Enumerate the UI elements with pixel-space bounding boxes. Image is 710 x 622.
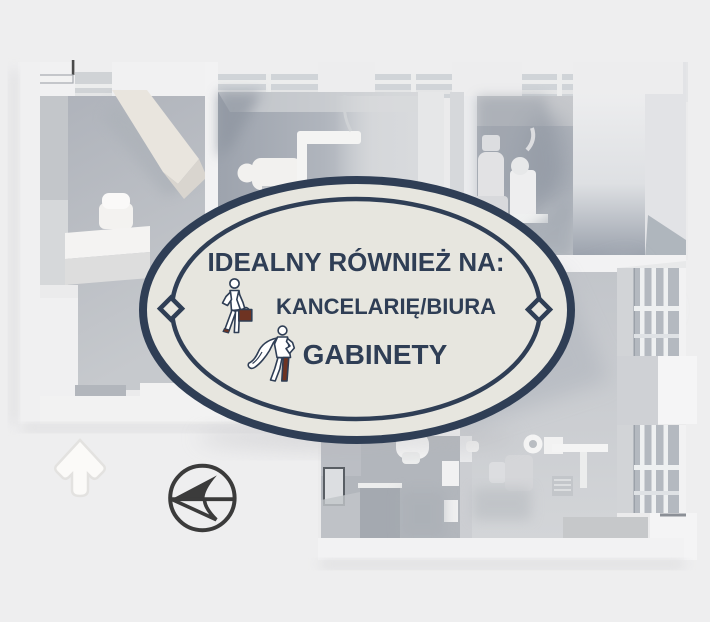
- svg-text:IDEALNY RÓWNIEŻ NA:: IDEALNY RÓWNIEŻ NA:: [207, 247, 504, 277]
- svg-text:GABINETY: GABINETY: [303, 339, 448, 370]
- svg-text:KANCELARIĘ/BIURA: KANCELARIĘ/BIURA: [276, 294, 496, 319]
